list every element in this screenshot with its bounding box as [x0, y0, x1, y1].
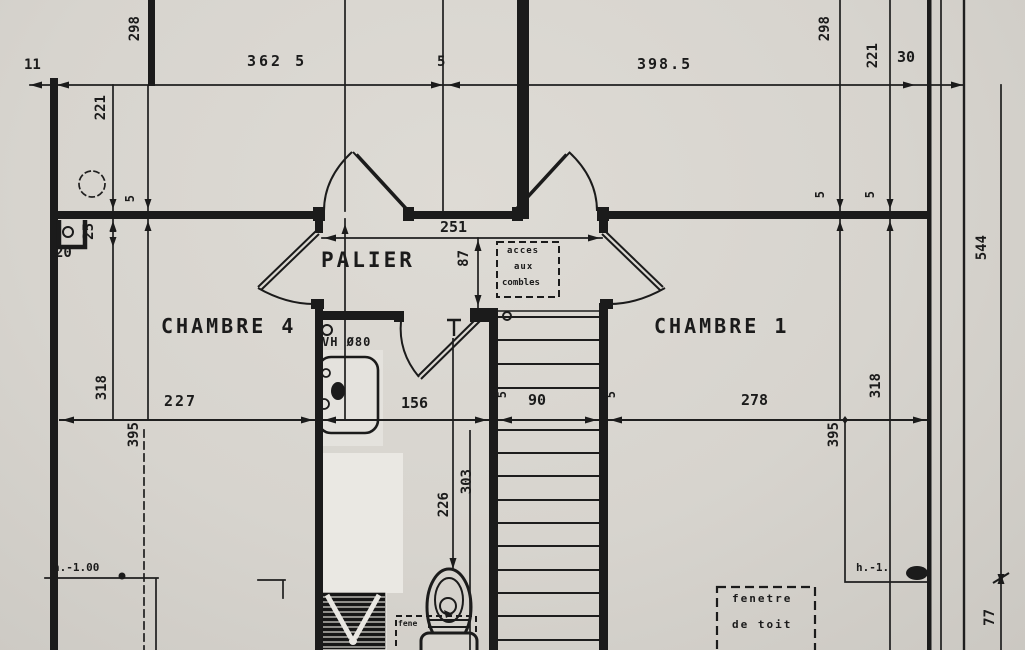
dim-5-top: 5 — [437, 55, 445, 69]
label-fenetre-1: fenetre — [732, 593, 792, 604]
dim-5-stair-right: 5 — [605, 391, 617, 398]
dim-20: 20 — [55, 246, 72, 260]
label-acces-2: aux — [514, 263, 533, 272]
label-acces-3: combles — [502, 279, 540, 288]
dim-5-wall-right-b: 5 — [864, 191, 876, 198]
dim-318-left: 318 — [95, 375, 109, 400]
dim-5-wall-left: 5 — [124, 195, 136, 202]
dim-227: 227 — [164, 394, 197, 409]
dim-278: 278 — [741, 393, 768, 408]
label-fenetre-2: de toit — [732, 619, 792, 630]
dim-303: 303 — [460, 469, 474, 494]
label-fene-partial: fene — [398, 620, 417, 628]
dim-5-stair-left: 5 — [496, 391, 508, 398]
room-palier: PALIER — [321, 250, 415, 271]
dim-87: 87 — [457, 250, 471, 267]
dim-5-wall-right-a: 5 — [814, 191, 826, 198]
label-h-left: h.-1.00 — [53, 562, 99, 573]
dim-30: 30 — [897, 50, 915, 65]
dim-156: 156 — [401, 396, 428, 411]
dim-318-right: 318 — [869, 373, 883, 398]
room-chambre-1: CHAMBRE 1 — [654, 316, 789, 336]
dim-226: 226 — [437, 492, 451, 517]
label-vh: VH Ø80 — [322, 336, 371, 348]
dim-221-left: 221 — [94, 95, 108, 120]
dim-362-5: 362 5 — [247, 54, 307, 69]
dim-90: 90 — [528, 393, 546, 408]
dim-77: 77 — [983, 609, 997, 626]
dim-398-5: 398.5 — [637, 57, 692, 72]
label-h-right: h.-1. — [856, 562, 889, 573]
label-acces-1: acces — [507, 247, 539, 256]
dim-221-right: 221 — [866, 43, 880, 68]
dim-544: 544 — [975, 235, 989, 260]
labels-layer: 11362 55398.530298221298221525205525187P… — [0, 0, 1025, 650]
dim-298-right: 298 — [818, 16, 832, 41]
dim-298-left: 298 — [128, 16, 142, 41]
dim-25: 25 — [82, 223, 96, 240]
dim-11: 11 — [24, 58, 41, 72]
room-chambre-4: CHAMBRE 4 — [161, 316, 296, 336]
dim-395-right: 395 — [827, 422, 841, 447]
floor-plan-page: 11362 55398.530298221298221525205525187P… — [0, 0, 1025, 650]
dim-251: 251 — [440, 220, 467, 235]
dim-395-left: 395 — [127, 422, 141, 447]
